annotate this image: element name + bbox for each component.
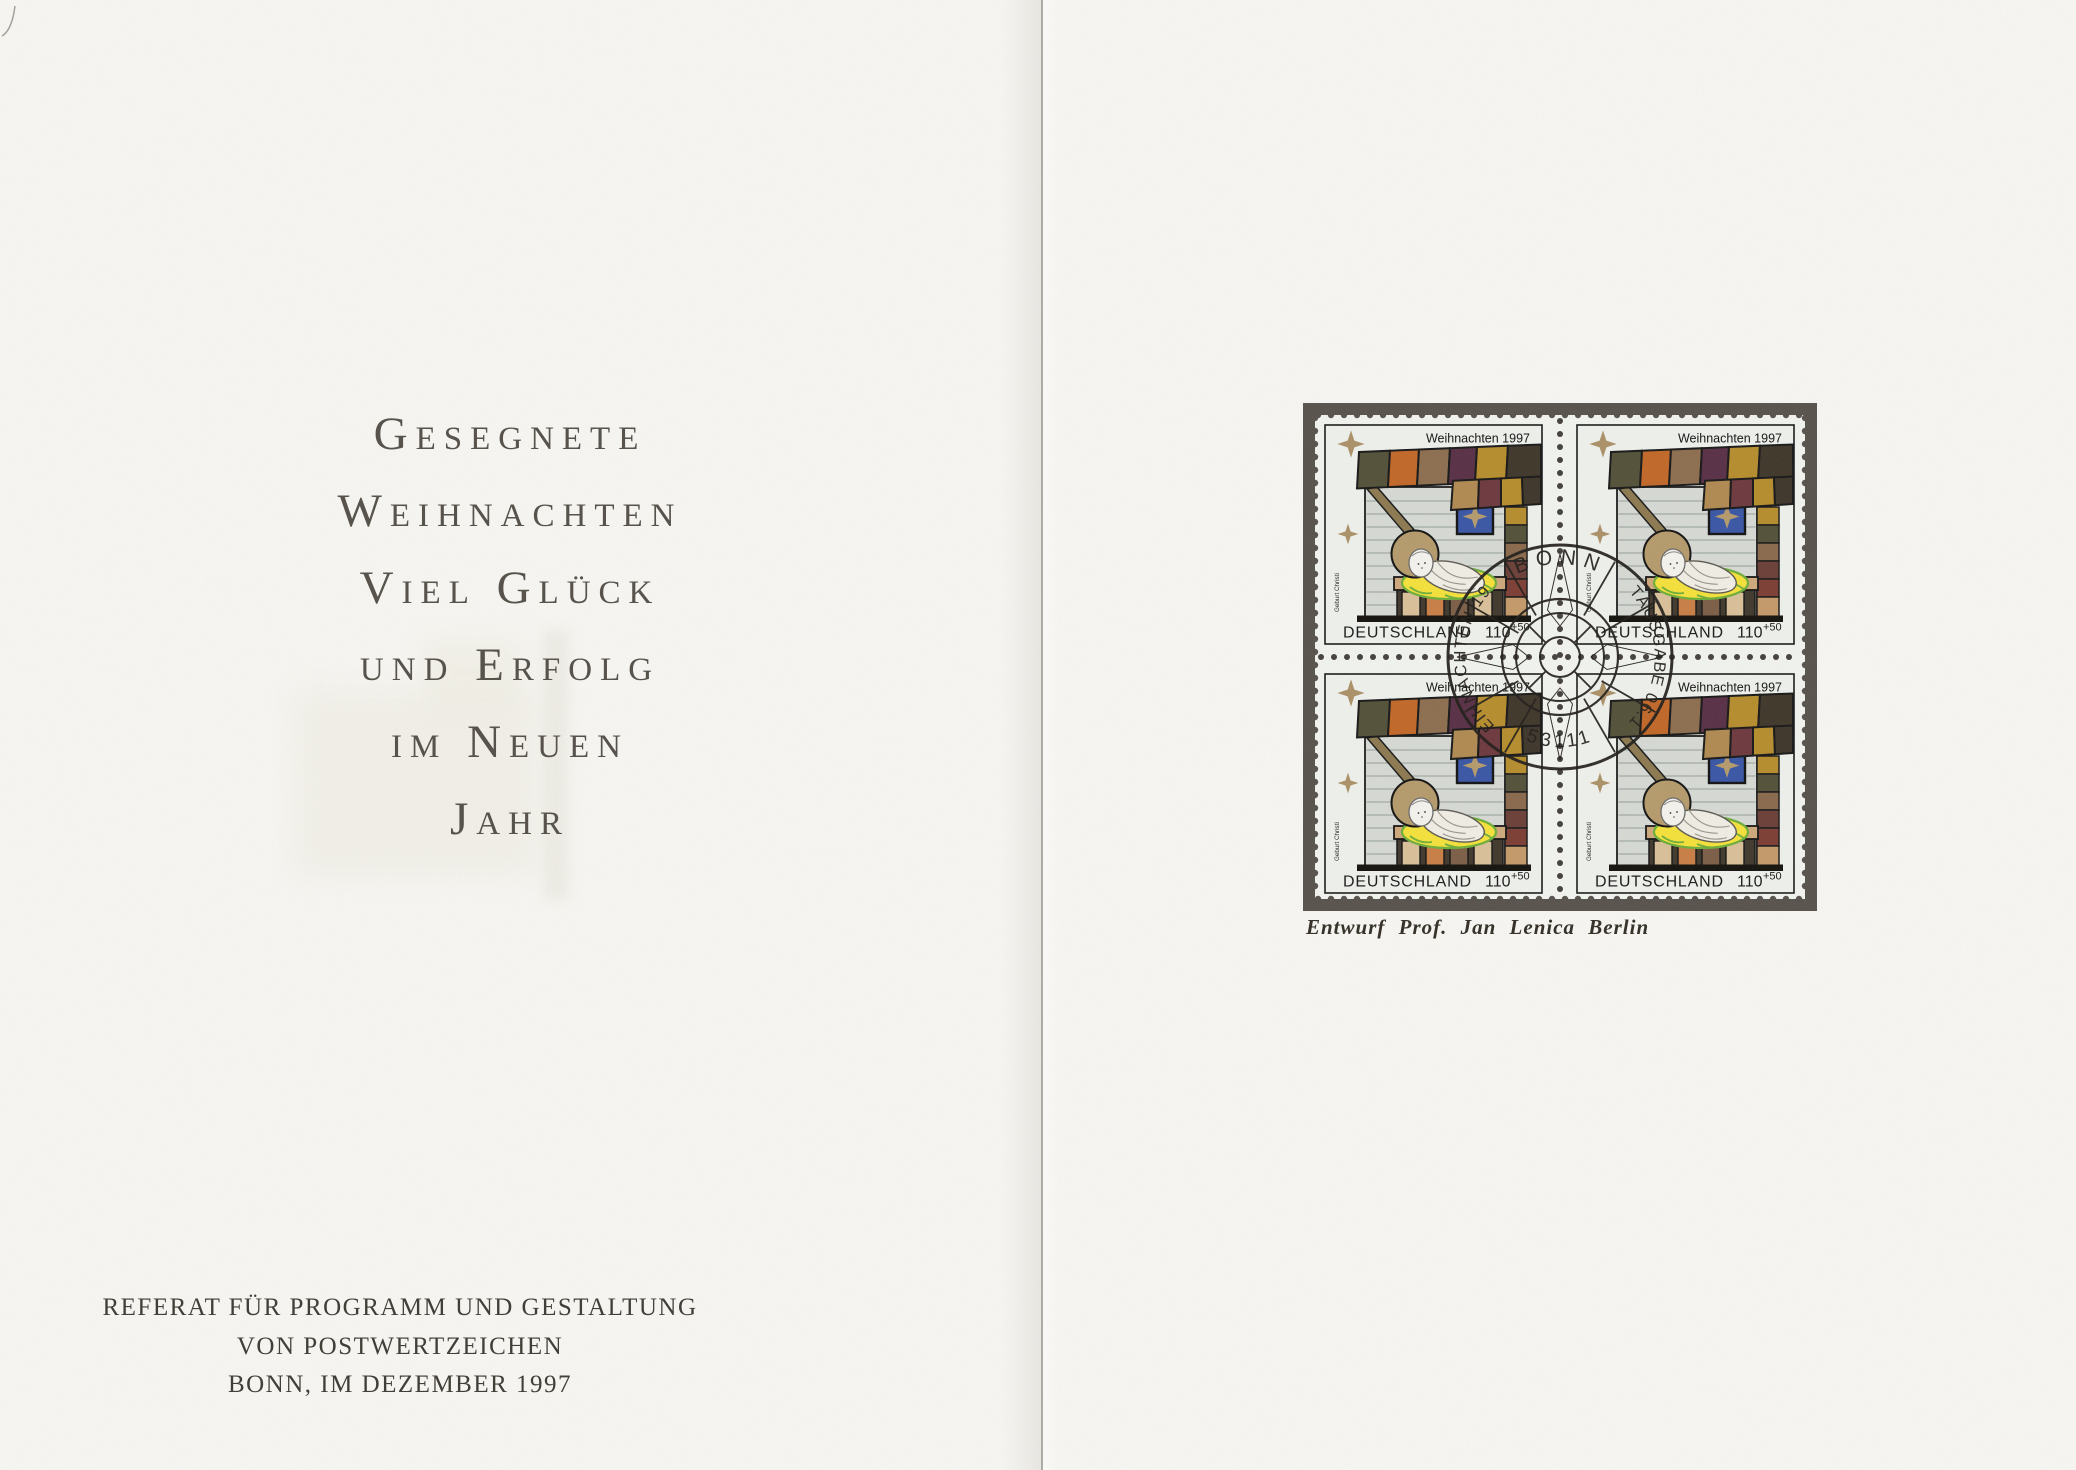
stamp <box>1567 664 1805 899</box>
corner-curl-mark <box>0 0 22 42</box>
greeting-line-1: Gesegnete <box>150 396 870 473</box>
stamp-block-svg: Weihnachten 1997 Geburt Christi DEUTSCHL… <box>1303 403 1817 911</box>
greeting-line-3: Viel Glück <box>150 550 870 627</box>
card-fold-highlight <box>1043 0 1059 1470</box>
greeting-line-2: Weihnachten <box>150 473 870 550</box>
designer-caption: Entwurf Prof. Jan Lenica Berlin <box>1306 915 1649 940</box>
stamp <box>1315 415 1553 650</box>
greeting-line-6: Jahr <box>150 781 870 858</box>
imprint-line-2: VON POSTWERTZEICHEN <box>55 1328 745 1367</box>
card-fold-shadow <box>1001 0 1041 1470</box>
imprint-line-1: REFERAT FÜR PROGRAMM UND GESTALTUNG <box>55 1289 745 1328</box>
greeting-line-4: und Erfolg <box>150 627 870 704</box>
imprint-text: REFERAT FÜR PROGRAMM UND GESTALTUNG VON … <box>55 1289 745 1405</box>
greeting-text: Gesegnete Weihnachten Viel Glück und Erf… <box>150 396 870 858</box>
souvenir-card-scan: Gesegnete Weihnachten Viel Glück und Erf… <box>0 0 2076 1470</box>
greeting-line-5: im Neuen <box>150 704 870 781</box>
stamp <box>1567 415 1805 650</box>
stamp <box>1315 664 1553 899</box>
stamp-block: Weihnachten 1997 Geburt Christi DEUTSCHL… <box>1303 403 1817 911</box>
imprint-line-3: BONN, IM DEZEMBER 1997 <box>55 1366 745 1405</box>
